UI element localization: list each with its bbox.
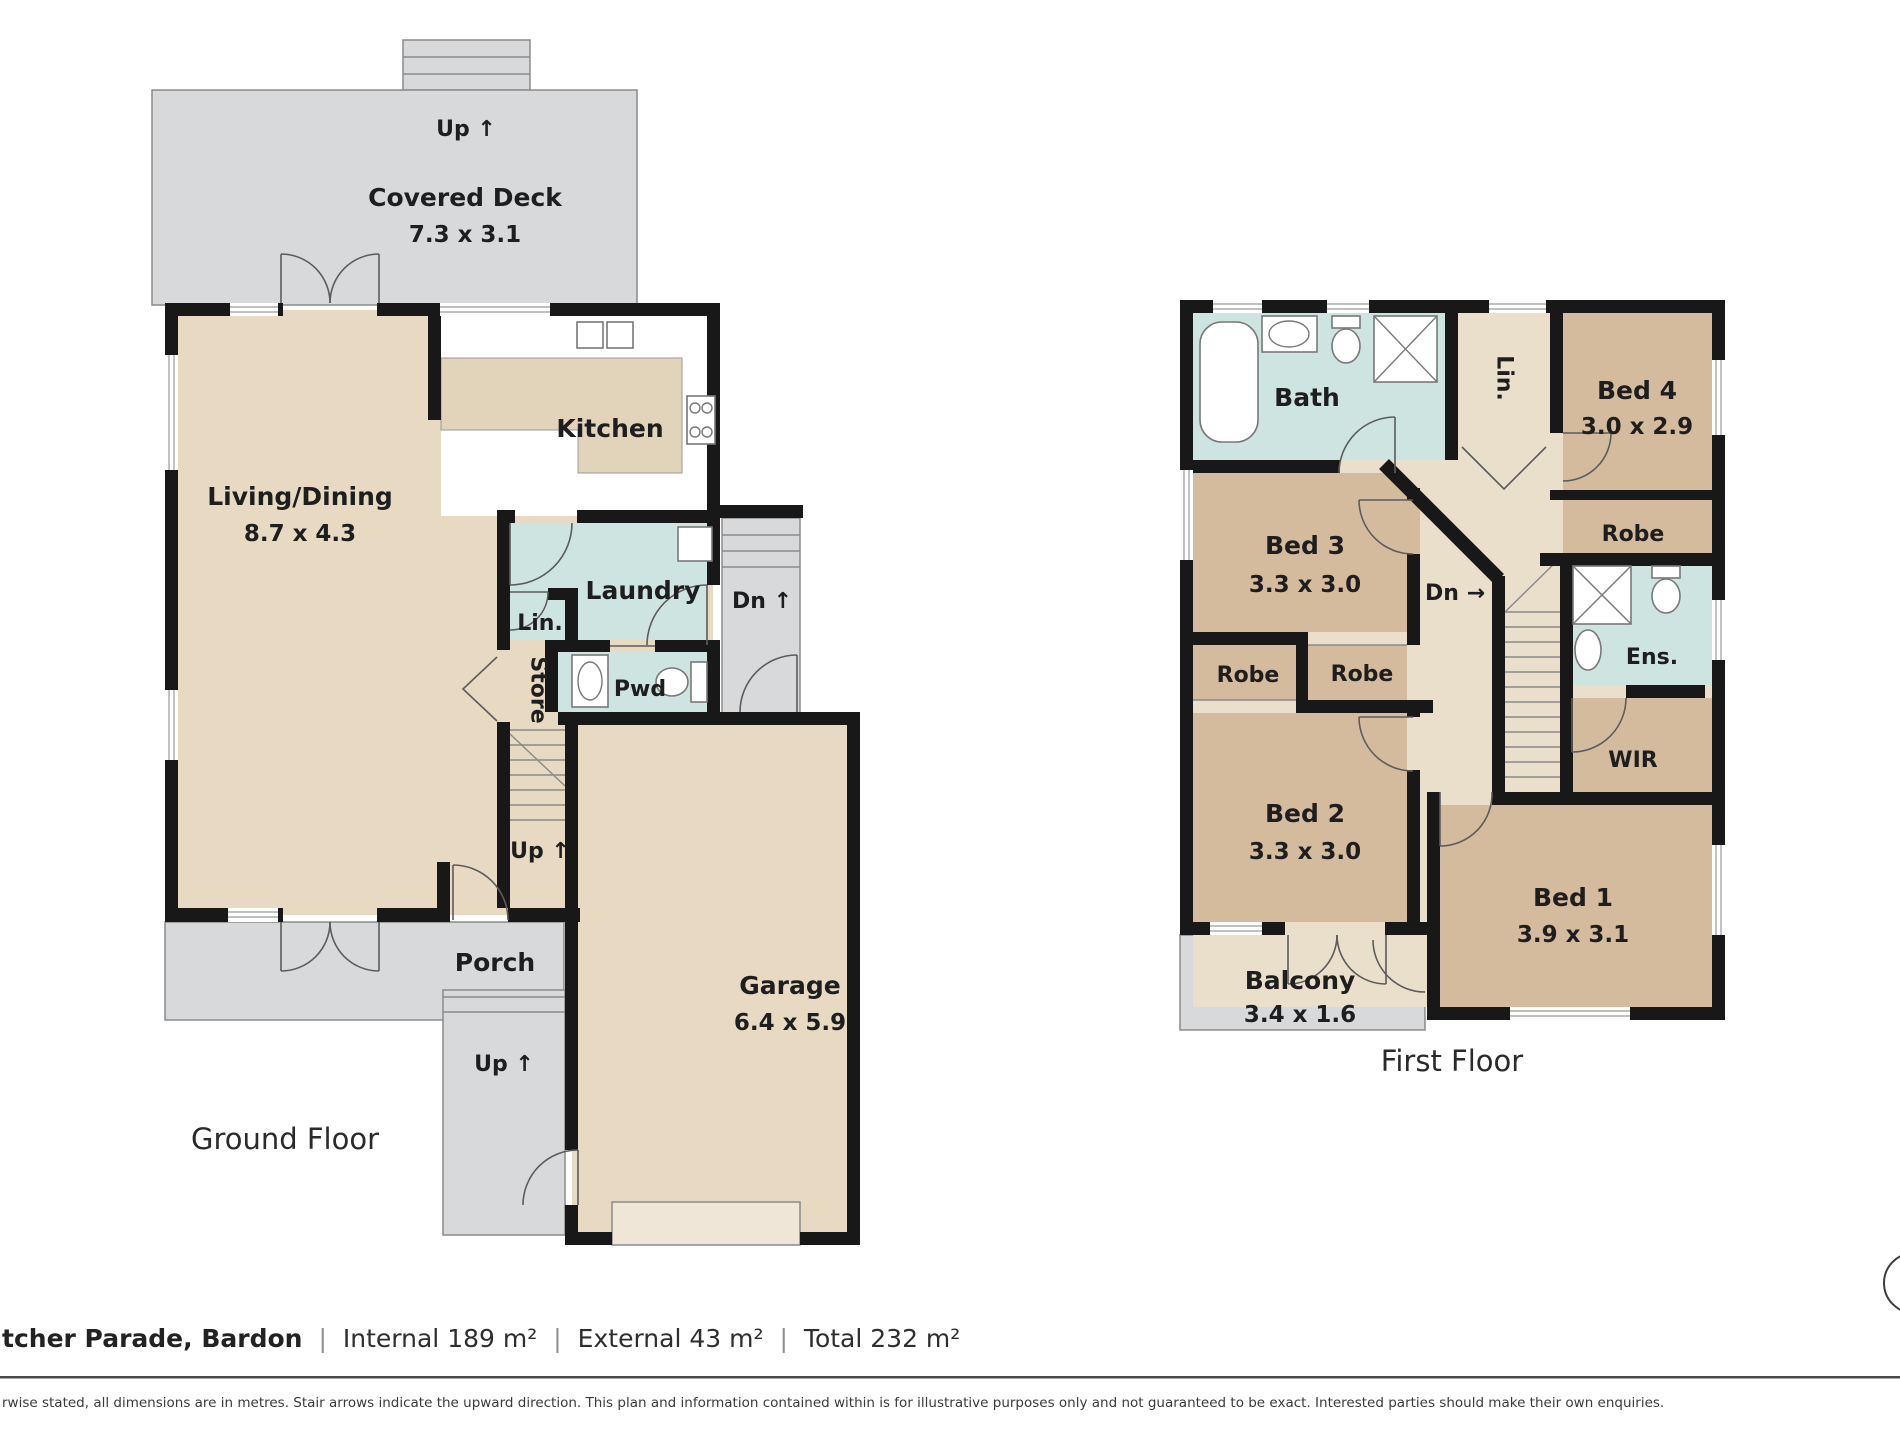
robe-left-label: Robe [1217,663,1280,688]
wir-label: WIR [1608,748,1657,773]
first-floor-caption: First Floor [1381,1044,1523,1078]
bath-shower-icon [1374,316,1437,382]
front-steps-area [443,990,565,1235]
bed2-dims: 3.3 x 3.0 [1249,839,1361,865]
kitchen-sink-icon [577,322,603,348]
internal-stairs-up-label: Up ↑ [510,839,570,864]
ensuite-label: Ens. [1626,645,1678,670]
powder-label: Pwd [614,677,666,702]
kitchen-sink-icon [607,322,633,348]
garage-dims: 6.4 x 5.9 [734,1010,846,1036]
stove-icon [687,396,715,444]
floorplan-canvas: Up ↑ Covered Deck 7.3 x 3.1 Kitchen Livi… [0,0,1900,1425]
laundry-label: Laundry [586,576,701,605]
address-text: tcher Parade, Bardon [2,1324,302,1353]
bed4-robe-label: Robe [1602,522,1665,547]
bed4-dims: 3.0 x 2.9 [1581,414,1693,440]
bath-label: Bath [1274,383,1340,412]
logo-partial-circle [1884,1253,1900,1313]
bed4-label: Bed 4 [1597,376,1677,405]
separator: | [779,1324,787,1353]
kitchen-label: Kitchen [556,414,663,443]
external-area-text: External 43 m² [578,1324,764,1353]
porch-label: Porch [455,948,535,977]
powder-vanity-icon [572,655,608,707]
stairs-down-label: Dn → [1425,581,1485,606]
deck-stairs [403,40,530,90]
bath-sink-icon [1262,316,1317,352]
footer-divider [0,1376,1900,1379]
total-area-text: Total 232 m² [803,1324,960,1353]
separator: | [553,1324,561,1353]
covered-deck-label: Covered Deck [368,183,563,212]
disclaimer-text: rwise stated, all dimensions are in metr… [2,1395,1664,1411]
linen-label: Lin. [517,611,563,636]
garage-label: Garage [739,971,840,1000]
laundry-tub-icon [678,527,712,561]
footer: tcher Parade, Bardon|Internal 189 m²|Ext… [0,1253,1900,1411]
footer-summary-line: tcher Parade, Bardon|Internal 189 m²|Ext… [2,1324,960,1353]
bed3-label: Bed 3 [1265,531,1345,560]
garage-door [612,1202,800,1245]
ensuite-shower-icon [1573,566,1631,624]
internal-area-text: Internal 189 m² [343,1324,537,1353]
ensuite-sink-icon [1575,630,1601,670]
ground-floor-caption: Ground Floor [191,1122,379,1156]
bed1-label: Bed 1 [1533,883,1613,912]
bed3-dims: 3.3 x 3.0 [1249,572,1361,598]
front-steps-up-label: Up ↑ [474,1052,534,1077]
side-stairs-down-label: Dn ↑ [732,589,792,614]
covered-deck-dims: 7.3 x 3.1 [409,222,521,248]
deck-stairs-up-label: Up ↑ [436,117,496,142]
ground-floor-plan: Up ↑ Covered Deck 7.3 x 3.1 Kitchen Livi… [152,40,860,1245]
balcony-dims: 3.4 x 1.6 [1244,1002,1356,1028]
linen-ff-label: Lin. [1492,355,1517,401]
living-dining-dims: 8.7 x 4.3 [244,521,356,547]
bed1-dims: 3.9 x 3.1 [1517,922,1629,948]
ensuite-toilet-icon [1652,566,1680,613]
living-dining-label: Living/Dining [207,482,393,511]
side-stairs-area [722,518,800,716]
store-label: Store [526,656,551,723]
bath-toilet-icon [1332,316,1360,363]
bathtub-icon [1200,322,1258,442]
first-floor-plan: Bath Lin. Bed 4 3.0 x 2.9 Robe Bed 3 3.3… [1180,300,1725,1078]
bed2-label: Bed 2 [1265,799,1345,828]
wir-area [1573,698,1712,792]
balcony-label: Balcony [1245,966,1356,995]
robe-right-label: Robe [1331,662,1394,687]
separator: | [318,1324,326,1353]
